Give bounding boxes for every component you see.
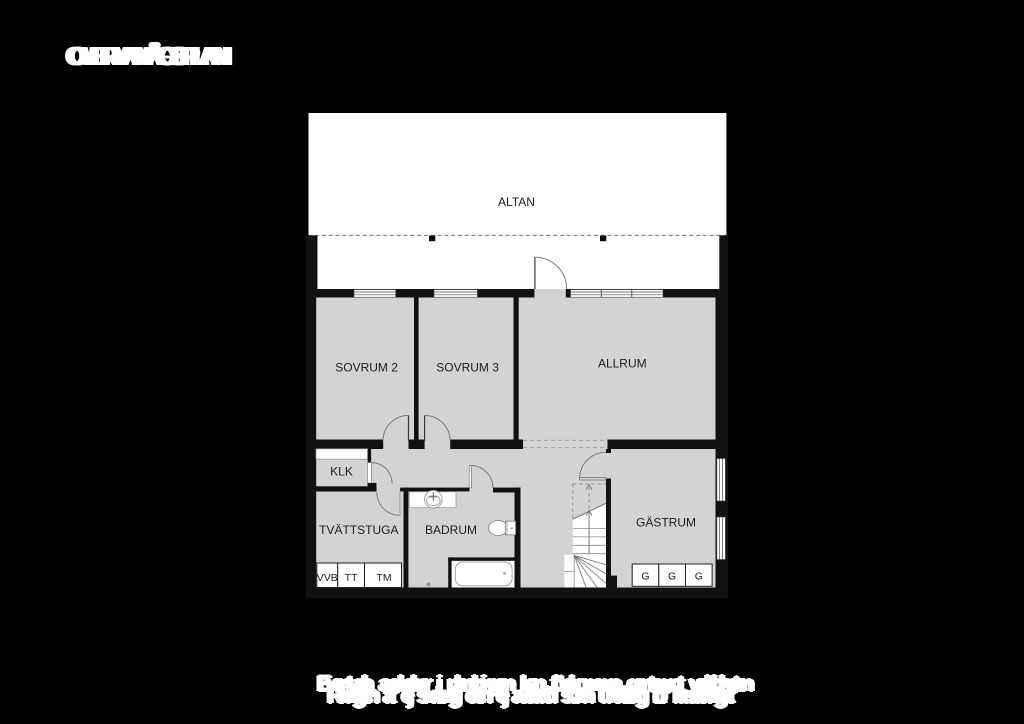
svg-text:G: G — [695, 570, 703, 582]
svg-text:TT: TT — [345, 572, 358, 584]
svg-text:GÄSTRUM: GÄSTRUM — [636, 515, 696, 529]
svg-text:TM: TM — [376, 572, 391, 584]
svg-text:SOVRUM 3: SOVRUM 3 — [436, 361, 499, 375]
svg-text:TVÄTTSTUGA: TVÄTTSTUGA — [319, 523, 398, 537]
svg-text:G: G — [668, 570, 676, 582]
svg-text:ALLRUM: ALLRUM — [598, 356, 647, 370]
svg-text:BADRUM: BADRUM — [425, 523, 477, 537]
svg-text:ALTAN: ALTAN — [498, 195, 535, 209]
svg-text:G: G — [641, 570, 649, 582]
svg-text:SOVRUM 2: SOVRUM 2 — [335, 361, 398, 375]
svg-text:KLK: KLK — [330, 465, 353, 479]
svg-text:VVB: VVB — [317, 572, 338, 584]
